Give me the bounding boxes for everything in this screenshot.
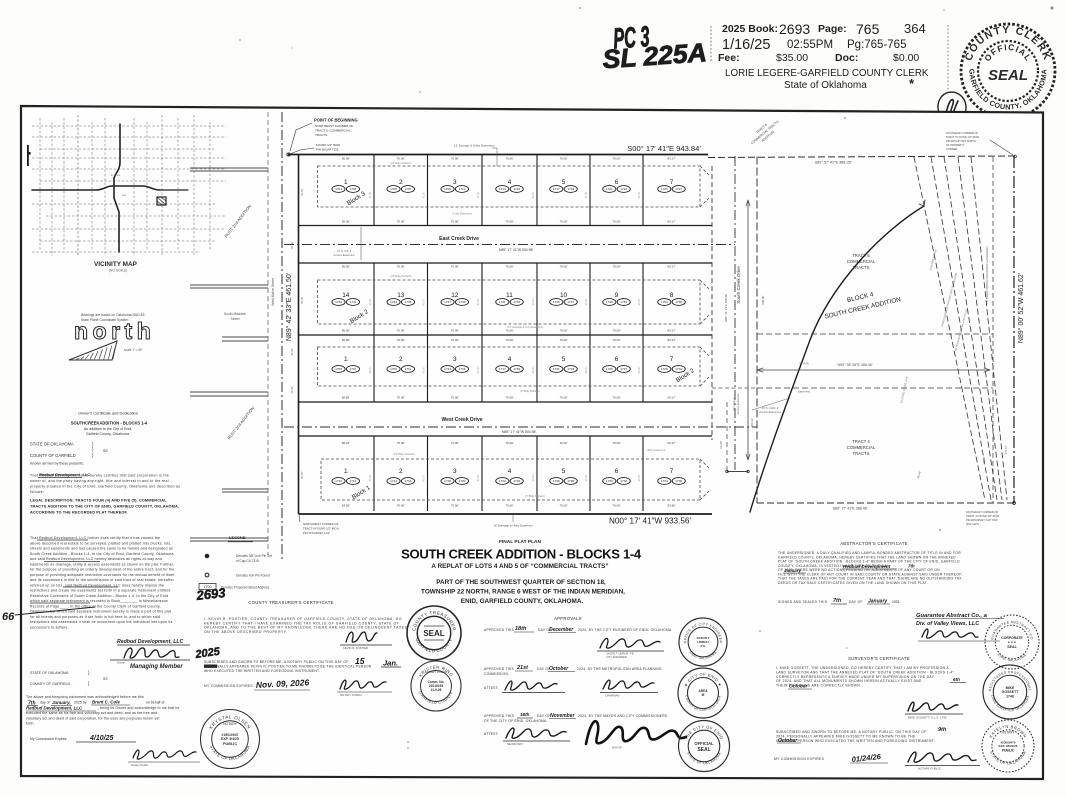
- svg-text:90.00′: 90.00′: [532, 474, 535, 481]
- svg-text:owner of, and the party having: owner of, and the party having any right…: [30, 479, 169, 483]
- svg-text:1748: 1748: [1006, 695, 1014, 699]
- svg-text:1755: 1755: [675, 300, 682, 304]
- svg-text:, being its Owner and acknowle: , being its Owner and acknowledge to me …: [98, 706, 180, 710]
- svg-text:110.14′: 110.14′: [750, 418, 754, 428]
- svg-text:90.00′: 90.00′: [477, 298, 480, 305]
- svg-text:SOUTHCREEKADDITION - BLOCKS 1-: SOUTHCREEKADDITION - BLOCKS 1-4: [71, 421, 148, 426]
- svg-text:364: 364: [904, 21, 926, 36]
- svg-text:Redbud Development, LLC: Redbud Development, LLC: [26, 706, 83, 711]
- svg-text:S89° 17′ 41″E 388.46′: S89° 17′ 41″E 388.46′: [833, 507, 868, 511]
- svg-text:(NO SCALE): (NO SCALE): [109, 269, 127, 273]
- svg-text:4: 4: [508, 356, 512, 363]
- svg-text:ON THE ABOVE DESCRIBED PROPERT: ON THE ABOVE DESCRIBED PROPERTY.: [204, 630, 288, 634]
- svg-text:2025 Book:: 2025 Book:: [722, 23, 778, 35]
- svg-text:1729: 1729: [661, 367, 668, 371]
- svg-text:N89° 58′ 08″E 388.46′: N89° 58′ 08″E 388.46′: [837, 363, 872, 367]
- svg-text:6th: 6th: [953, 677, 960, 682]
- svg-text:1724: 1724: [513, 479, 520, 483]
- svg-text:9: 9: [615, 292, 619, 299]
- svg-text:CORRECTLY REPRESENTS A SURVEY: CORRECTLY REPRESENTS A SURVEY MADE UNDER…: [776, 675, 935, 679]
- svg-text:69.27′: 69.27′: [667, 441, 676, 445]
- svg-text:91.50′: 91.50′: [638, 191, 641, 198]
- svg-text:9th: 9th: [938, 727, 947, 733]
- svg-text:West Creek Drive: West Creek Drive: [441, 417, 482, 423]
- svg-text:ATTEST:: ATTEST:: [484, 732, 499, 736]
- svg-text:(15′ Bldg Setback): (15′ Bldg Setback): [390, 274, 411, 278]
- svg-text:1727: 1727: [675, 187, 682, 191]
- svg-text:October: October: [789, 684, 809, 690]
- svg-text:2024, BY THE MAYOR AND CITY CO: 2024, BY THE MAYOR AND CITY COMMISSIONER…: [578, 714, 668, 718]
- svg-text:OF THE CITY OF ENID, OKLAHOMA.: OF THE CITY OF ENID, OKLAHOMA.: [484, 719, 548, 723]
- svg-text:90.00′: 90.00′: [369, 366, 372, 373]
- svg-text:N00° 17′ 41″W 933.56′: N00° 17′ 41″W 933.56′: [609, 517, 692, 526]
- svg-text:1721: 1721: [553, 367, 560, 371]
- svg-text:70.00′: 70.00′: [397, 157, 406, 161]
- svg-text:January: January: [868, 599, 887, 605]
- svg-text:TRACT 4 FOUND 1/2″ IRON: TRACT 4 FOUND 1/2″ IRON: [966, 514, 999, 518]
- svg-text:50.00′: 50.00′: [290, 241, 294, 249]
- svg-text:1723: 1723: [620, 187, 627, 191]
- svg-text:for the purpose of providing a: for the purpose of providing an orderly …: [30, 568, 175, 572]
- svg-text:Denotes Proposed Street Addres: Denotes Proposed Street Address: [221, 586, 270, 590]
- svg-text:TRACT 5, COMMERCIAL: TRACT 5, COMMERCIAL: [315, 129, 351, 133]
- svg-text:(15′ Bldg Setback): (15′ Bldg Setback): [393, 452, 414, 456]
- svg-text:follows:: follows:: [30, 490, 44, 494]
- svg-text:Denotes Iron Pin Found: Denotes Iron Pin Found: [236, 574, 270, 578]
- svg-text:1733: 1733: [390, 300, 397, 304]
- svg-text:18th: 18th: [515, 626, 527, 632]
- svg-text:3: 3: [453, 179, 457, 186]
- svg-text:Managing Member: Managing Member: [130, 664, 183, 670]
- svg-text:NORTHWEST CORNER OF: NORTHWEST CORNER OF: [303, 522, 339, 526]
- svg-text:South Creek Drive: South Creek Drive: [736, 266, 741, 304]
- svg-text:PIN W/SURVEY CAP 7319: PIN W/SURVEY CAP 7319: [966, 518, 998, 522]
- svg-text:1718: 1718: [444, 479, 451, 483]
- svg-text:January,: January,: [52, 700, 71, 705]
- svg-text:1723: 1723: [567, 367, 574, 371]
- svg-text:easements as drainage, utility: easements as drainage, utility & access …: [30, 562, 174, 566]
- svg-text:Owner's Certificate and Dedica: Owner's Certificate and Dedication: [78, 411, 138, 416]
- svg-text:N89° 42′ 33″E 208.00′: N89° 42′ 33″E 208.00′: [724, 293, 728, 322]
- svg-text:January: January: [784, 568, 801, 573]
- svg-text:70.00′: 70.00′: [505, 338, 514, 342]
- svg-text:1749: 1749: [606, 300, 613, 304]
- svg-text:70.00′: 70.00′: [451, 329, 460, 333]
- svg-text:11: 11: [506, 292, 513, 299]
- svg-text:1721: 1721: [606, 187, 613, 191]
- svg-text:95.00′: 95.00′: [342, 329, 351, 333]
- svg-text:4: 4: [508, 179, 512, 186]
- svg-text:90.00′: 90.00′: [477, 366, 480, 373]
- svg-text:★ ★ ★: ★ ★ ★: [1008, 640, 1017, 644]
- svg-text:Redbud Development, LLC: Redbud Development, LLC: [117, 639, 184, 645]
- svg-text:70.00′: 70.00′: [397, 441, 406, 445]
- svg-text:NOTARY PUBLIC: NOTARY PUBLIC: [340, 693, 362, 697]
- svg-text:70.00′: 70.00′: [612, 265, 621, 269]
- svg-text:N89° 17′ 41″W 504.98′: N89° 17′ 41″W 504.98′: [502, 430, 536, 434]
- svg-text:East Creek Drive: East Creek Drive: [439, 236, 479, 242]
- svg-text:1731: 1731: [675, 367, 682, 371]
- svg-text:site: site: [122, 193, 127, 197]
- svg-text:1713: 1713: [499, 187, 506, 191]
- svg-text:WHO EXECUTED THE WRITTEN AND F: WHO EXECUTED THE WRITTEN AND FOREGOING I…: [204, 669, 320, 673]
- svg-text:PERSONALLY APPEARED KEVIN R. P: PERSONALLY APPEARED KEVIN R. POSTIER TO …: [204, 665, 372, 669]
- svg-text:70.00′: 70.00′: [397, 504, 406, 508]
- svg-text:(5′ Bldg Setback): (5′ Bldg Setback): [520, 389, 540, 393]
- svg-text:33.24′: 33.24′: [290, 348, 294, 356]
- svg-text:TRACTS: TRACTS: [853, 451, 870, 456]
- svg-text:COMMISSION.: COMMISSION.: [484, 672, 509, 676]
- svg-text:21st: 21st: [516, 665, 529, 671]
- svg-text:30′ R/W: 30′ R/W: [799, 362, 809, 366]
- svg-text:which said separate instrument: which said separate instrument is record…: [30, 599, 168, 603]
- svg-text:and its successors in title to: and its successors in title to the subdi…: [30, 578, 175, 582]
- svg-text:ACCORDING TO THE RECORDED PLAT: ACCORDING TO THE RECORDED PLAT THEREOF.: [30, 510, 128, 515]
- svg-text:1707: 1707: [350, 367, 357, 371]
- svg-text:SEAL: SEAL: [988, 67, 1028, 84]
- svg-text:1722: 1722: [499, 479, 506, 483]
- svg-text:70.00′: 70.00′: [505, 504, 514, 508]
- svg-text:1715: 1715: [459, 367, 466, 371]
- svg-text:APPROVED THIS: APPROVED THIS: [484, 628, 514, 632]
- svg-text:14: 14: [342, 292, 350, 299]
- svg-text:90.00′: 90.00′: [369, 298, 372, 305]
- svg-text:1717: 1717: [553, 187, 560, 191]
- svg-text:STATE OF OKLAHOMA: STATE OF OKLAHOMA: [30, 671, 69, 675]
- svg-text:1709: 1709: [390, 367, 397, 371]
- svg-text:COUNTY TREASURER'S CERTIFICATE: COUNTY TREASURER'S CERTIFICATE: [248, 600, 333, 605]
- svg-text:91.50′: 91.50′: [585, 191, 588, 198]
- svg-text:IDENTICAL PERSON WHO EXECUTED: IDENTICAL PERSON WHO EXECUTED THE WRITTE…: [776, 739, 935, 743]
- svg-text:90.00′: 90.00′: [638, 474, 641, 481]
- svg-text:OF PROPERTY: OF PROPERTY: [946, 143, 965, 147]
- svg-text:70.00′: 70.00′: [505, 220, 514, 224]
- svg-text:70.00′: 70.00′: [451, 396, 460, 400]
- svg-text:December: December: [549, 627, 574, 633]
- svg-text:2: 2: [399, 179, 403, 186]
- svg-text:1737: 1737: [444, 300, 451, 304]
- svg-text:That Redbud Development, LLC f: That Redbud Development, LLC further doe…: [30, 536, 160, 540]
- svg-text:SEAL: SEAL: [1007, 645, 1017, 649]
- svg-text:77.21′: 77.21′: [982, 456, 986, 464]
- svg-text:90.00′: 90.00′: [638, 298, 641, 305]
- svg-text:property situated in the City: property situated in the City of Enid, G…: [30, 485, 180, 489]
- svg-text:91.50′: 91.50′: [369, 191, 372, 198]
- svg-text:NORTHEAST CORNER OF: NORTHEAST CORNER OF: [315, 124, 353, 128]
- svg-text:and said Redbud Development, L: and said Redbud Development, LLC hereby …: [30, 557, 162, 561]
- svg-text:63.30′: 63.30′: [719, 441, 723, 449]
- svg-text:SEAL: SEAL: [423, 629, 444, 638]
- svg-text:DAY OF: DAY OF: [537, 714, 550, 718]
- svg-text:PUBLIC: PUBLIC: [1002, 748, 1015, 752]
- svg-text:SS: SS: [103, 677, 108, 681]
- svg-text:executed the same as his free: executed the same as his free and volunt…: [26, 711, 157, 715]
- svg-text:1719: 1719: [567, 187, 574, 191]
- svg-text:66′ S. Utility &: 66′ S. Utility &: [762, 406, 779, 410]
- svg-text:70.00′: 70.00′: [559, 220, 568, 224]
- svg-text:1729: 1729: [335, 300, 342, 304]
- svg-text:90.00′: 90.00′: [423, 366, 426, 373]
- svg-text:70.00′: 70.00′: [505, 396, 514, 400]
- svg-text:1: 1: [344, 179, 348, 186]
- svg-text:83.27′: 83.27′: [667, 338, 676, 342]
- svg-text:91.50′: 91.50′: [477, 191, 480, 198]
- svg-text:1719: 1719: [513, 367, 520, 371]
- svg-text:SECRETARY: SECRETARY: [507, 742, 523, 746]
- svg-text:MAYOR: MAYOR: [612, 746, 622, 750]
- svg-text:70.00′: 70.00′: [397, 220, 406, 224]
- svg-text:An addition to the City of Eni: An addition to the City of Enid,: [84, 427, 132, 431]
- svg-text:voluntary act and deed of said: voluntary act and deed of said corporati…: [26, 716, 160, 720]
- svg-text:1713: 1713: [444, 367, 451, 371]
- svg-text:1701: 1701: [335, 187, 342, 191]
- svg-text:2693: 2693: [779, 21, 810, 37]
- svg-text:on behalf of: on behalf of: [146, 700, 164, 704]
- svg-text:PIN W/CAP 7319 NORTH: PIN W/CAP 7319 NORTH: [946, 139, 976, 143]
- svg-text:1745: 1745: [553, 300, 560, 304]
- svg-text:South Madison: South Madison: [224, 312, 247, 316]
- svg-text:36.08′: 36.08′: [290, 386, 294, 394]
- svg-text:70.00′: 70.00′: [397, 338, 406, 342]
- svg-text:95.00′: 95.00′: [342, 220, 351, 224]
- svg-text:TRACT 4: TRACT 4: [852, 439, 870, 444]
- svg-text:2025: 2025: [892, 600, 900, 604]
- svg-text:forth.: forth.: [26, 722, 35, 726]
- svg-text:15: 15: [355, 656, 365, 666]
- svg-text:$0.00: $0.00: [893, 52, 919, 64]
- svg-text:90′ Utility &: 90′ Utility &: [732, 397, 736, 410]
- svg-text:91.50′: 91.50′: [532, 191, 535, 198]
- svg-text:Access Easement: Access Easement: [736, 393, 740, 414]
- svg-text:1736: 1736: [675, 479, 682, 483]
- svg-text:66: 66: [2, 611, 15, 623]
- svg-text:$35.00: $35.00: [776, 52, 808, 64]
- svg-text:70.00′: 70.00′: [612, 504, 621, 508]
- svg-text:(P12 1427): (P12 1427): [966, 522, 979, 526]
- svg-text:1712: 1712: [350, 479, 357, 483]
- svg-text:15′ Storage & Utility Easement: 15′ Storage & Utility Easement: [454, 144, 495, 148]
- svg-text:north: north: [74, 318, 155, 344]
- svg-text:95.00′: 95.00′: [342, 338, 351, 342]
- svg-text:15′ Drainage & Utility Easemen: 15′ Drainage & Utility Easement: [493, 524, 533, 528]
- svg-text:MIKE GOSSETT, O.L.S. 1748: MIKE GOSSETT, O.L.S. 1748: [908, 716, 947, 720]
- svg-text:EXP. 08/24/26: EXP. 08/24/26: [999, 744, 1018, 748]
- svg-text:NOTARY PUBLIC: NOTARY PUBLIC: [918, 767, 941, 771]
- svg-text:83.27′: 83.27′: [667, 157, 676, 161]
- svg-text:12: 12: [451, 292, 459, 299]
- svg-text:PUBLIC: PUBLIC: [223, 742, 237, 746]
- svg-text:Fee:: Fee:: [718, 52, 740, 64]
- svg-text:TRACT 4 FOUND 1/2″ IRON: TRACT 4 FOUND 1/2″ IRON: [303, 527, 339, 531]
- svg-text:restrictions and create the ea: restrictions and create the easements se…: [30, 589, 171, 593]
- svg-text:1716: 1716: [405, 479, 412, 483]
- svg-text:70.00′: 70.00′: [612, 329, 621, 333]
- svg-text:5: 5: [562, 356, 566, 363]
- svg-text:SS: SS: [103, 449, 108, 453]
- svg-text:M: M: [702, 693, 705, 697]
- svg-text:2: 2: [399, 468, 403, 475]
- svg-text:11-9-26: 11-9-26: [431, 688, 442, 692]
- svg-text:70.00′: 70.00′: [397, 329, 406, 333]
- svg-text:1710: 1710: [335, 479, 342, 483]
- svg-text:10: 10: [560, 292, 568, 299]
- svg-text:COUNTY OF GARFIELD: COUNTY OF GARFIELD: [30, 453, 76, 458]
- svg-text:1707: 1707: [405, 187, 412, 191]
- svg-text:7th: 7th: [908, 564, 915, 569]
- svg-text:SUBSCRIBED AND SWORN TO BEFORE: SUBSCRIBED AND SWORN TO BEFORE ME, A NOT…: [776, 730, 927, 734]
- svg-text:N89° 17′ 41″W 534.98′: N89° 17′ 41″W 534.98′: [499, 248, 533, 252]
- svg-text:70.00′: 70.00′: [451, 157, 460, 161]
- svg-text:MY COMMISSION EXPIRES: MY COMMISSION EXPIRES: [204, 684, 253, 688]
- svg-text:70.00′: 70.00′: [559, 441, 568, 445]
- svg-text:TRACT 5 FOUND 1/2″ IRON: TRACT 5 FOUND 1/2″ IRON: [946, 135, 979, 139]
- svg-text:Brent C. Cole: Brent C. Cole: [92, 700, 120, 705]
- svg-text:of Cap-CA 7319: of Cap-CA 7319: [236, 559, 259, 563]
- svg-text:7: 7: [670, 356, 674, 363]
- svg-text:Access Easement: Access Easement: [759, 410, 781, 414]
- svg-text:CITY ENGINEER: CITY ENGINEER: [606, 655, 627, 659]
- svg-text:FINAL PLAT PLAN: FINAL PLAT PLAN: [499, 539, 541, 545]
- svg-text:98.20′: 98.20′: [342, 441, 351, 445]
- svg-text:APPROVED THIS: APPROVED THIS: [484, 714, 514, 718]
- svg-text:Denotes 3/8″ Iron Pin Set: Denotes 3/8″ Iron Pin Set: [236, 554, 272, 558]
- svg-text:LEGEND: LEGEND: [229, 535, 246, 540]
- svg-text:SOUTHEAST CORNER OF: SOUTHEAST CORNER OF: [946, 131, 979, 135]
- svg-text:COUNTY OF GARFIELD: COUNTY OF GARFIELD: [30, 682, 70, 686]
- svg-text:95.00′: 95.00′: [342, 265, 351, 269]
- svg-text:70.00′: 70.00′: [612, 220, 621, 224]
- svg-text:70.00′: 70.00′: [559, 504, 568, 508]
- svg-text:Access Easement: Access Easement: [334, 253, 355, 257]
- svg-text:83.27′: 83.27′: [667, 220, 676, 224]
- svg-text:1727: 1727: [620, 367, 627, 371]
- svg-text:Bearings are based on Oklahoma: Bearings are based on Oklahoma NAD 83: [81, 313, 144, 317]
- svg-text:765: 765: [856, 21, 880, 37]
- svg-text:1711: 1711: [405, 367, 412, 371]
- svg-text:1739: 1739: [459, 300, 466, 304]
- svg-text:TRACTS: TRACTS: [315, 133, 327, 137]
- svg-text:91.50′: 91.50′: [423, 191, 426, 198]
- svg-text:1743: 1743: [513, 300, 520, 304]
- svg-text:90.00′: 90.00′: [369, 474, 372, 481]
- svg-text:02:55PM: 02:55PM: [787, 39, 833, 51]
- svg-text:69.27′: 69.27′: [667, 396, 676, 400]
- svg-text:West Maine Street: West Maine Street: [271, 278, 275, 306]
- svg-text:SURVEYOR'S CERTIFICATE: SURVEYOR'S CERTIFICATE: [848, 656, 910, 661]
- svg-text:P E: P E: [701, 644, 706, 648]
- svg-text:13: 13: [397, 292, 405, 299]
- svg-text:5: 5: [562, 468, 566, 475]
- svg-text:70.00′: 70.00′: [397, 396, 406, 400]
- svg-text:PART OF THE SOUTHWEST QUARTER: PART OF THE SOUTHWEST QUARTER OF SECTION…: [436, 579, 606, 586]
- svg-text:E. Rupe: E. Rupe: [111, 173, 121, 177]
- svg-text:successors to adhere.: successors to adhere.: [30, 625, 69, 629]
- svg-text:95.00′: 95.00′: [342, 157, 351, 161]
- svg-text:7th: 7th: [833, 598, 842, 604]
- svg-text:70.00′: 70.00′: [559, 157, 568, 161]
- svg-text:1705: 1705: [335, 367, 342, 371]
- svg-text:70.00′: 70.00′: [397, 265, 406, 269]
- svg-text:90.00′: 90.00′: [585, 298, 588, 305]
- svg-text:TOWNSHIP 22 NORTH, RANGE 6 WES: TOWNSHIP 22 NORTH, RANGE 6 WEST OF THE I…: [421, 589, 625, 596]
- svg-text:MY COMMISSION EXPIRES: MY COMMISSION EXPIRES: [774, 757, 825, 761]
- svg-text:JASON T. UNRUH, P.E.: JASON T. UNRUH, P.E.: [606, 652, 635, 656]
- svg-text:OF 2024, AND TH: OF 2024, AND THAT ALL MONUMENTS SHOWN HE…: [776, 679, 922, 683]
- svg-text:70.00′: 70.00′: [451, 220, 460, 224]
- svg-text:91.50′: 91.50′: [300, 188, 304, 196]
- svg-text:6: 6: [615, 356, 619, 363]
- svg-text:PIN W/CAP 7319: PIN W/CAP 7319: [316, 148, 339, 152]
- svg-text:restrictions and easements it: restrictions and easements it shall be i…: [30, 620, 173, 624]
- svg-text:66.85′: 66.85′: [342, 396, 351, 400]
- svg-text:70.00′: 70.00′: [612, 338, 621, 342]
- svg-text:(15′ Garbage & Utly Easement): (15′ Garbage & Utly Easement): [507, 325, 543, 329]
- svg-text:A REPLAT OF LOTS 4 AND 5 OF “C: A REPLAT OF LOTS 4 AND 5 OF “COMMERCIAL …: [431, 563, 608, 570]
- svg-text:2693: 2693: [195, 585, 227, 603]
- svg-text:1735: 1735: [405, 300, 412, 304]
- svg-text:93.85′: 93.85′: [667, 504, 676, 508]
- svg-text:Pg:765-765: Pg:765-765: [847, 39, 906, 51]
- svg-text:KEVIN R. POSTIER: KEVIN R. POSTIER: [343, 646, 368, 650]
- svg-text:90.00′: 90.00′: [532, 366, 535, 373]
- svg-text:70.00′: 70.00′: [559, 265, 568, 269]
- svg-text:1732: 1732: [620, 479, 627, 483]
- svg-text:Jan.: Jan.: [383, 659, 398, 668]
- svg-text:TRACT 5: TRACT 5: [852, 253, 870, 258]
- svg-text:1717: 1717: [499, 367, 506, 371]
- svg-text:1730: 1730: [606, 479, 613, 483]
- svg-text:4/10/25: 4/10/25: [89, 735, 113, 742]
- svg-text:NOTARY: NOTARY: [223, 722, 238, 726]
- svg-text:5′ Utly Easement: 5′ Utly Easement: [452, 212, 472, 216]
- svg-text:90.00′: 90.00′: [638, 366, 641, 373]
- svg-text:2: 2: [399, 356, 403, 363]
- svg-text:N89° 42′ 33″E 461.50′: N89° 42′ 33″E 461.50′: [285, 272, 293, 341]
- svg-text:1741: 1741: [499, 300, 506, 304]
- svg-text:Notary Public: Notary Public: [131, 763, 149, 767]
- svg-text:streets and easements and has: streets and easements and has caused the…: [30, 547, 173, 551]
- svg-text:FOUND 1/2″ IRON: FOUND 1/2″ IRON: [316, 143, 340, 147]
- svg-text:SOUTHEAST CORNER OF: SOUTHEAST CORNER OF: [966, 510, 999, 514]
- svg-text:70.00′: 70.00′: [451, 504, 460, 508]
- svg-text:1705: 1705: [390, 187, 397, 191]
- svg-text:90.00′: 90.00′: [477, 474, 480, 481]
- svg-text:LAND SURVEYOR AND THAT THE ANN: LAND SURVEYOR AND THAT THE ANNEXED PLAT …: [776, 670, 954, 674]
- svg-text:70.00′: 70.00′: [451, 265, 460, 269]
- svg-text:(15′ Bldg Setback): (15′ Bldg Setback): [390, 161, 411, 165]
- svg-text:TRACTS ADDITION TO THE CITY OF: TRACTS ADDITION TO THE CITY OF ENID, GAR…: [30, 504, 179, 509]
- svg-text:VICINITY MAP: VICINITY MAP: [94, 261, 138, 268]
- svg-text:(5′ Bldg Setback): (5′ Bldg Setback): [525, 494, 545, 498]
- svg-text:90.00′: 90.00′: [585, 366, 588, 373]
- svg-text:POINT OF BEGINNING: POINT OF BEGINNING: [314, 118, 358, 123]
- svg-text:16th: 16th: [520, 712, 530, 717]
- svg-text:90.00′: 90.00′: [300, 471, 304, 479]
- svg-text:State of Oklahoma: State of Oklahoma: [784, 80, 867, 91]
- svg-text:SEAL: SEAL: [697, 747, 710, 753]
- svg-text:Redbud Development: Redbud Development: [843, 564, 891, 569]
- svg-text:6: 6: [615, 179, 619, 186]
- svg-text:LORIE LEGERE-GARFIELD COUNTY C: LORIE LEGERE-GARFIELD COUNTY CLERK: [725, 68, 929, 79]
- svg-text:purpose of providing adequate: purpose of providing adequate restrictiv…: [30, 573, 175, 577]
- svg-text:83.27′: 83.27′: [667, 329, 676, 333]
- svg-text:3: 3: [453, 356, 457, 363]
- svg-text:90.00′: 90.00′: [300, 296, 304, 304]
- svg-text:APPROVED THIS: APPROVED THIS: [484, 667, 514, 671]
- svg-text:2024, BY THE CITY ENGINEER OF: 2024, BY THE CITY ENGINEER OF ENID, OKLA…: [578, 628, 672, 632]
- svg-text:6: 6: [615, 468, 619, 475]
- svg-text:1726: 1726: [553, 479, 560, 483]
